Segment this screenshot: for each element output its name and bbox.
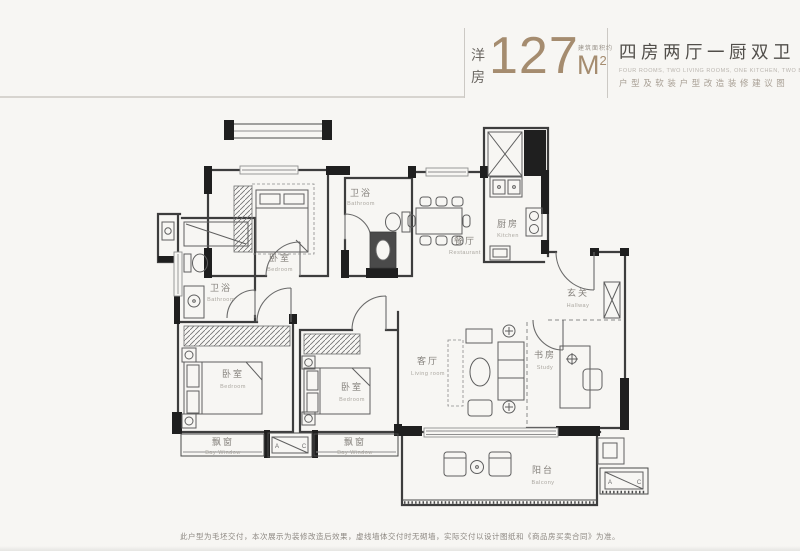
ac-label-c: C: [637, 480, 642, 486]
room-label-cn: 飘窗: [344, 436, 366, 447]
room-label-cn: 阳台: [532, 464, 554, 475]
room-label-cn: 餐厅: [454, 235, 476, 246]
room-label-en: Bay Window: [205, 450, 241, 456]
top-bay-window: [228, 124, 328, 138]
bedroom-middle-furniture: [302, 334, 370, 425]
room-label-en: Bay Window: [337, 450, 373, 456]
room-label-en: Kitchen: [497, 233, 519, 239]
ac-label-a: A: [608, 480, 612, 486]
ac-label-c: C: [302, 444, 307, 450]
floor-plan: A C A C 卧室 Bedroom 卫浴 Bathroom 餐厅 Restau…: [0, 0, 800, 551]
room-label-cn: 卧室: [341, 381, 363, 392]
room-label-cn: 厨房: [497, 218, 519, 229]
elevator-shaft: [488, 132, 522, 176]
balcony-furniture: [402, 452, 597, 503]
ac-platform-right: A C: [600, 468, 648, 494]
room-label-en: Hallway: [567, 303, 590, 309]
room-label-cn: 玄关: [567, 287, 589, 298]
walls: [158, 128, 625, 505]
living-room-furniture: [448, 325, 524, 416]
room-label-en: Bathroom: [207, 297, 235, 303]
ac-platform-bottom: A C: [268, 433, 312, 457]
room-label-cn: 书房: [534, 349, 556, 360]
hallway-closet: [604, 282, 620, 318]
room-label-en: Bedroom: [220, 384, 246, 390]
page-bottom-edge: [0, 546, 800, 551]
room-label-cn: 飘窗: [212, 436, 234, 447]
floorplan-page: 洋房 127 建筑面积约 M2 四房两厅一厨双卫 FOUR ROOMS, TWO…: [0, 0, 800, 551]
room-label-en: Living room: [411, 371, 445, 377]
room-label-cn: 卫浴: [350, 188, 372, 198]
room-label-en: Bedroom: [267, 267, 293, 273]
room-label-en: Balcony: [531, 480, 554, 486]
room-label-cn: 卧室: [222, 368, 244, 379]
equipment-box: [598, 438, 624, 464]
room-label-cn: 客厅: [417, 355, 439, 366]
room-label-en: Bedroom: [339, 397, 365, 403]
room-label-cn: 卫浴: [210, 283, 232, 293]
ac-label-a: A: [275, 444, 279, 450]
room-label-cn: 卧室: [269, 252, 291, 263]
dashed-walls: [527, 320, 621, 426]
disclaimer-text: 此户型为毛坯交付，本次展示为装修改造后效果，虚线墙体交付时无砌墙，实际交付以设计…: [0, 531, 800, 542]
room-label-en: Bathroom: [347, 201, 375, 207]
room-label-en: Restaurant: [449, 250, 481, 256]
room-label-en: Study: [537, 365, 554, 371]
study-furniture: [560, 346, 602, 408]
bathroom-top-fixtures: [370, 212, 410, 268]
